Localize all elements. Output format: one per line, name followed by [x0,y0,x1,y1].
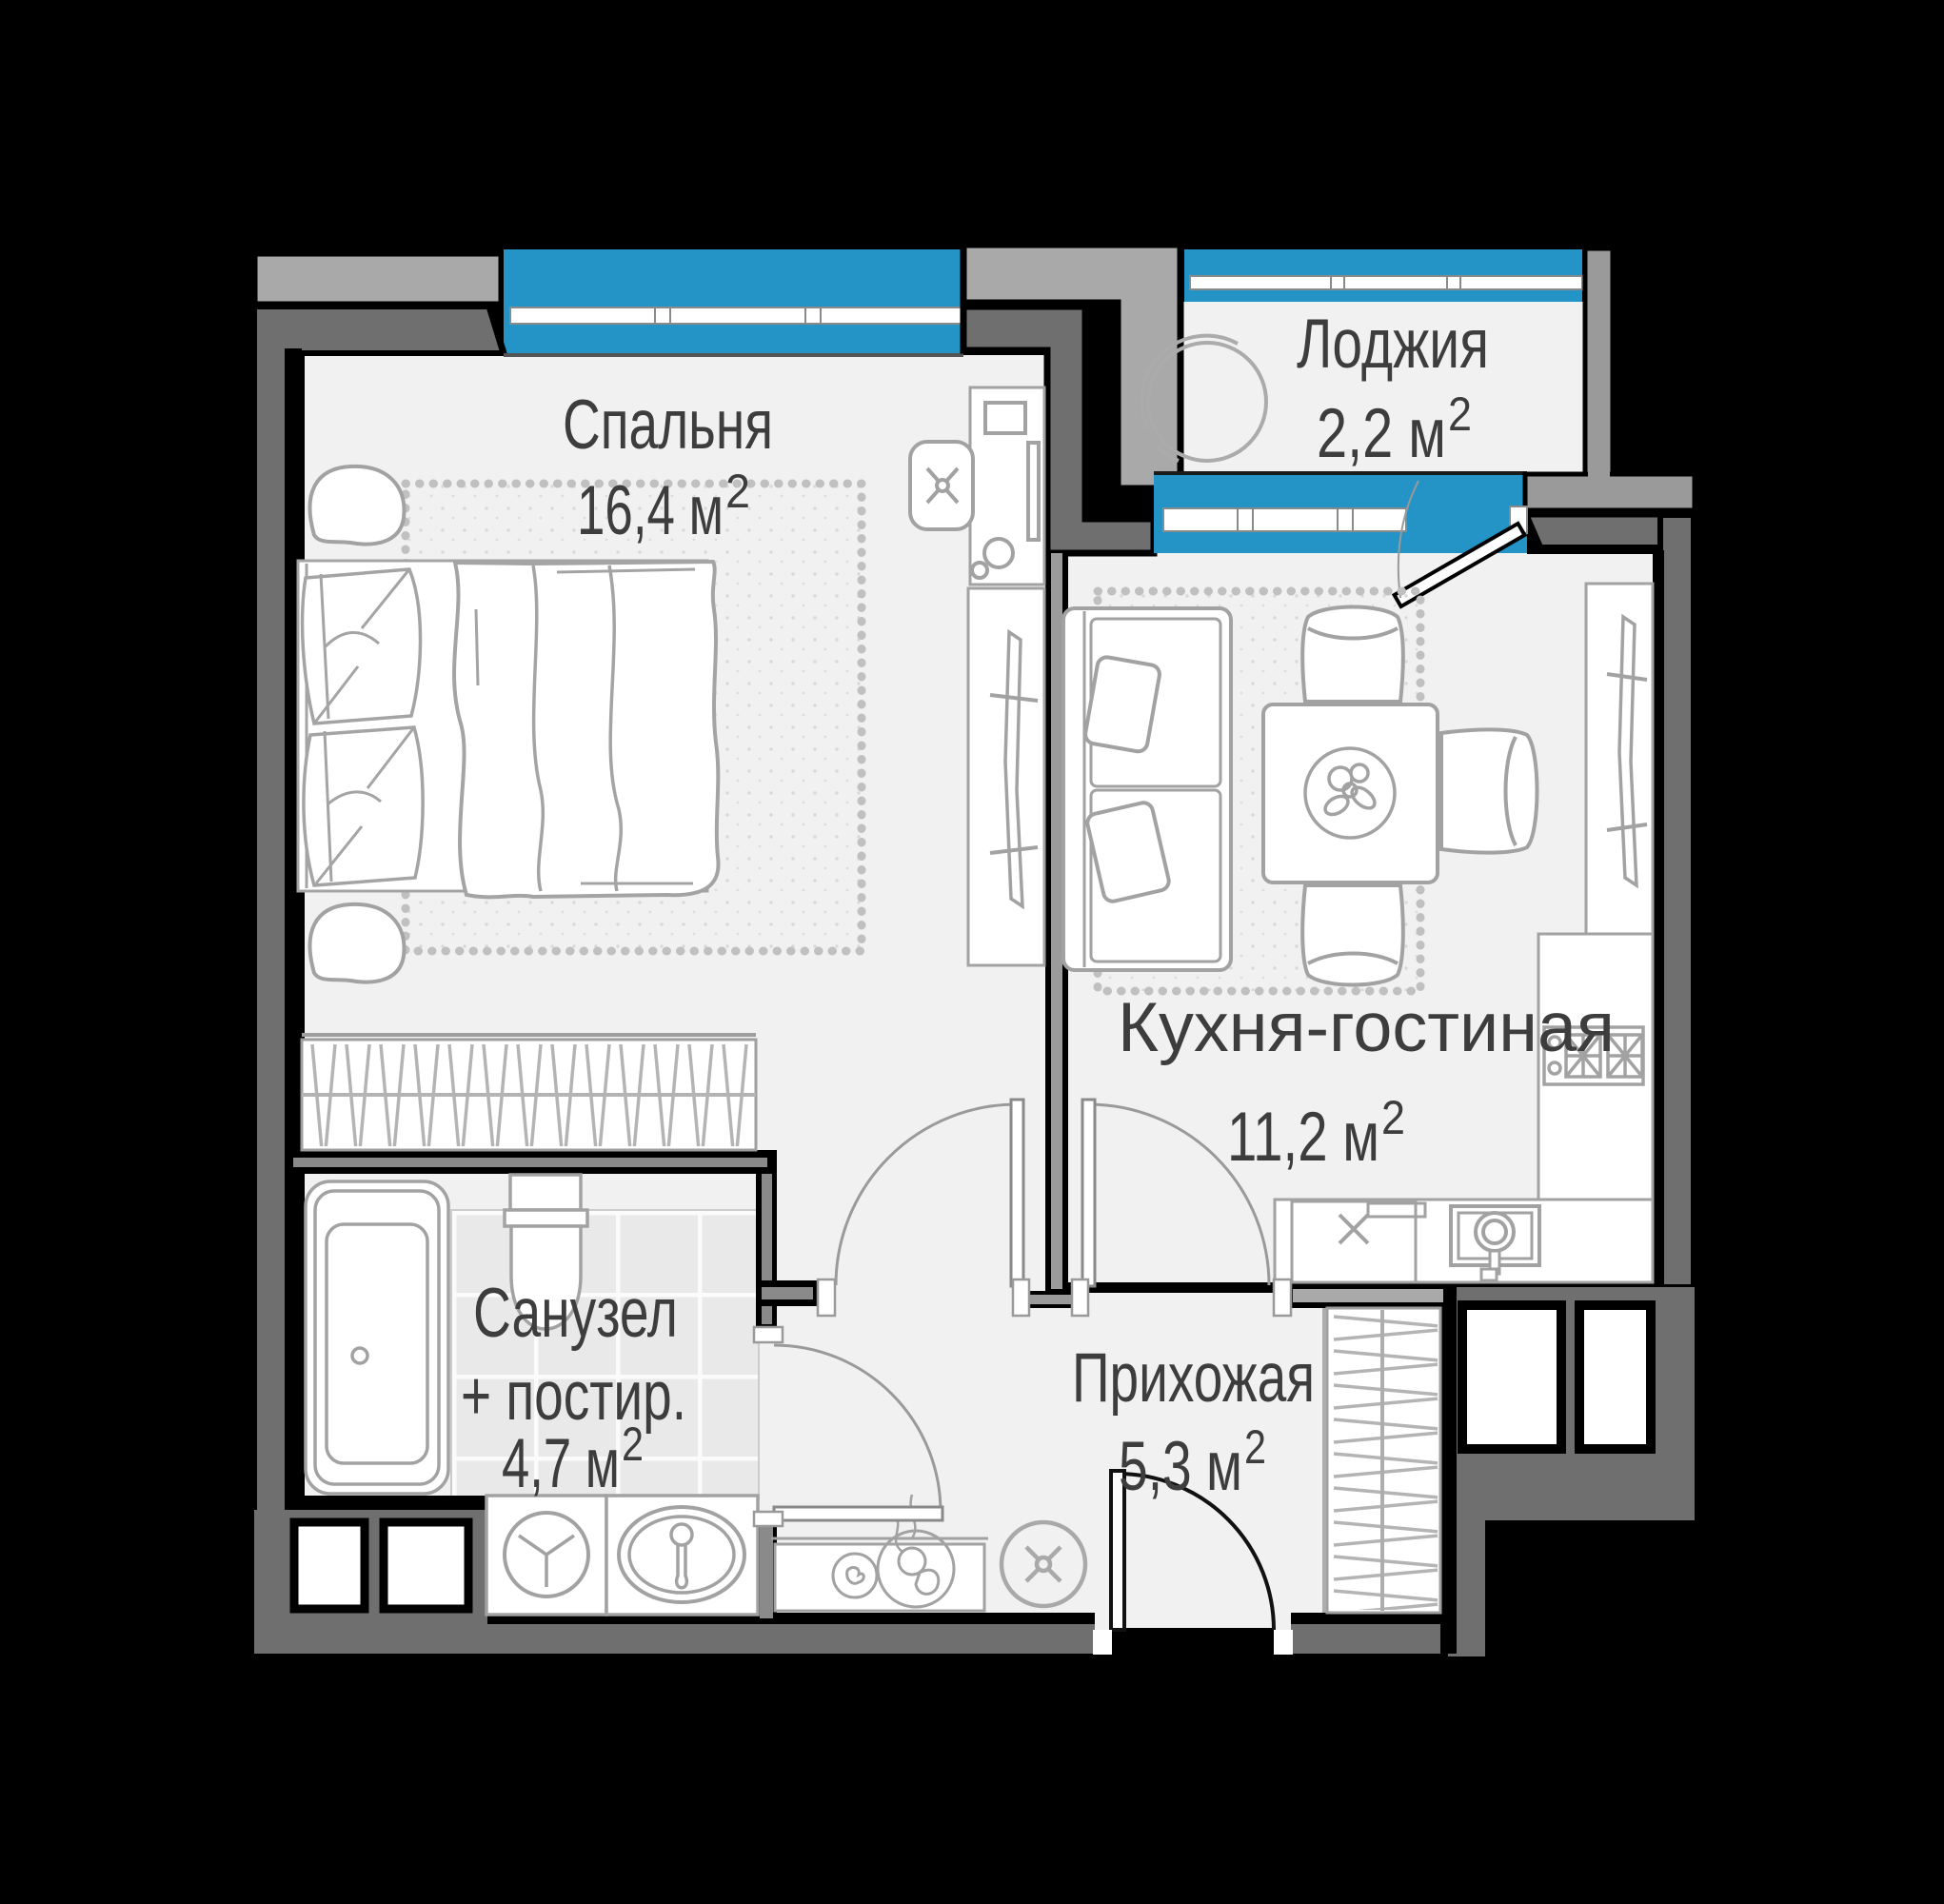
svg-text:2,2 м: 2,2 м [1317,395,1446,472]
svg-text:+ постир.: + постир. [461,1358,686,1435]
svg-text:4,7 м: 4,7 м [502,1425,620,1502]
svg-text:16,4 м: 16,4 м [577,472,724,549]
svg-text:Санузел: Санузел [473,1275,678,1352]
svg-text:Кухня-гостиная: Кухня-гостиная [1118,989,1615,1066]
svg-text:2: 2 [622,1418,644,1471]
svg-text:2: 2 [1244,1420,1266,1474]
svg-text:2: 2 [1448,387,1472,441]
svg-text:Спальня: Спальня [563,387,773,464]
svg-text:5,3 м: 5,3 м [1119,1428,1242,1505]
svg-text:Прихожая: Прихожая [1072,1339,1315,1417]
svg-text:Лоджия: Лоджия [1297,306,1489,383]
svg-text:2: 2 [1381,1091,1405,1144]
svg-text:2: 2 [725,465,750,518]
svg-text:11,2 м: 11,2 м [1227,1099,1379,1176]
